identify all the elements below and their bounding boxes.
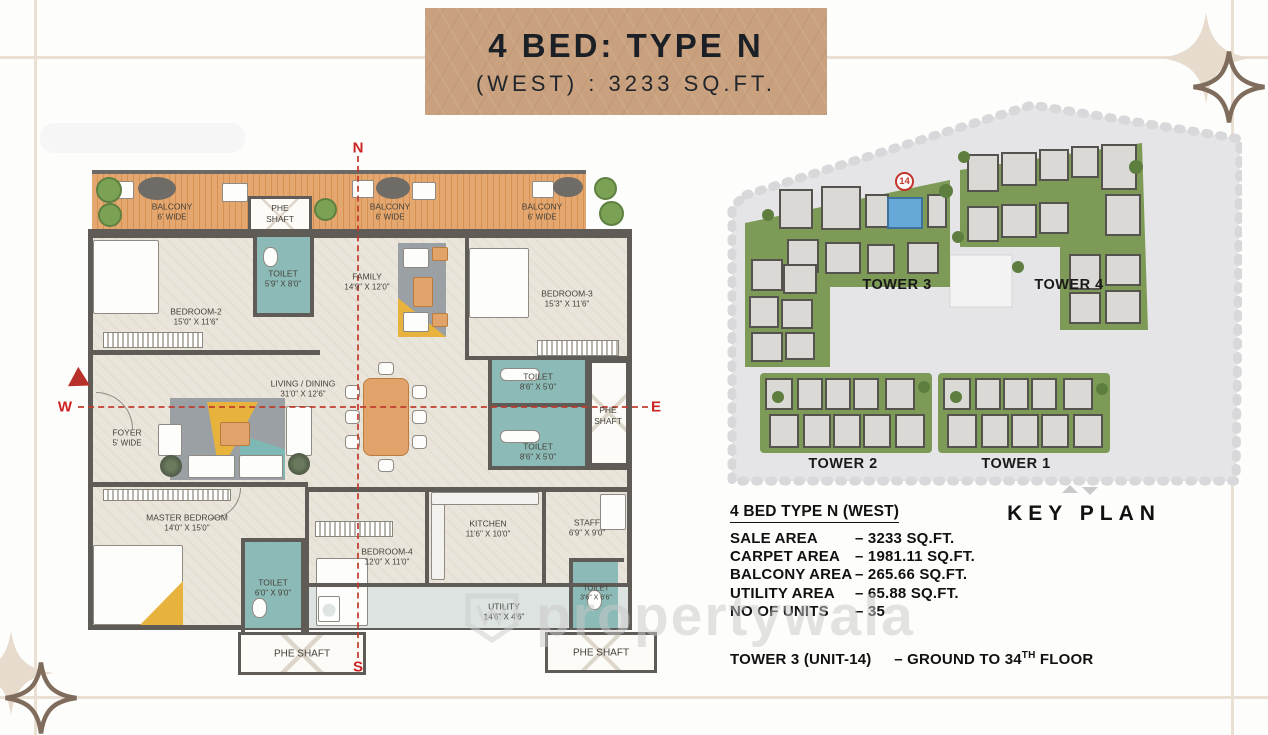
- frame-line-bottom: [0, 696, 1268, 699]
- label-phe-shaft-right: PHESHAFT: [594, 405, 622, 427]
- balcony-chair: [222, 183, 248, 202]
- wall: [88, 229, 632, 234]
- balcony-chair: [412, 182, 436, 200]
- tower-4-label: TOWER 4: [1034, 277, 1103, 293]
- side-table: [432, 247, 448, 261]
- family-chair: [403, 248, 429, 268]
- label-balcony-1: BALCONY6' WIDE: [152, 201, 193, 222]
- wall: [569, 558, 624, 562]
- page-subtitle: (WEST) : 3233 SQ.FT.: [476, 71, 776, 97]
- wall: [585, 360, 589, 470]
- compass-south: S: [353, 659, 363, 676]
- detail-label: BALCONY AREA: [730, 566, 855, 584]
- dining-chair: [412, 410, 427, 424]
- detail-row: UTILITY AREA – 65.88 SQ.FT.: [730, 585, 1150, 603]
- label-bedroom-4: BEDROOM-412'0" X 11'0": [361, 546, 412, 567]
- detail-label: UTILITY AREA: [730, 585, 855, 603]
- compass-west: W: [58, 399, 72, 416]
- frame-line-left: [34, 0, 37, 735]
- label-master-bedroom: MASTER BEDROOM14'0" X 15'0": [146, 512, 228, 533]
- wall: [253, 313, 314, 317]
- side-table: [432, 313, 448, 327]
- label-toilet-5: TOILET3'6" X 6'6": [580, 584, 612, 603]
- label-bedroom-2: BEDROOM-215'0" X 11'6": [170, 306, 221, 327]
- dining-chair: [412, 435, 427, 449]
- label-balcony-2: BALCONY6' WIDE: [370, 201, 411, 222]
- faded-watermark-blob: [40, 123, 245, 153]
- dining-chair: [412, 385, 427, 399]
- dining-chair: [378, 459, 394, 472]
- balcony-chair: [532, 181, 554, 198]
- tree-icon: [98, 203, 122, 227]
- label-balcony-3: BALCONY6' WIDE: [522, 201, 563, 222]
- compass-east: E: [651, 399, 661, 416]
- label-foyer: FOYER5' WIDE: [112, 427, 141, 448]
- sofa: [188, 455, 235, 478]
- tree-icon: [96, 177, 122, 203]
- plant-icon: [288, 453, 310, 475]
- label-phe-shaft-bottom-right: PHE SHAFT: [573, 647, 629, 660]
- label-bedroom-3: BEDROOM-315'3" X 11'6": [541, 288, 592, 309]
- kitchen-counter: [431, 492, 539, 505]
- sofa: [239, 455, 283, 478]
- detail-value: – 3233 SQ.FT.: [855, 530, 954, 548]
- wall: [425, 487, 429, 587]
- wall: [465, 233, 469, 360]
- coffee-table: [220, 422, 250, 446]
- wall: [488, 466, 632, 470]
- family-table: [413, 277, 433, 307]
- detail-label: CARPET AREA: [730, 548, 855, 566]
- unit-details: 4 BED TYPE N (WEST) SALE AREA – 3233 SQ.…: [730, 503, 1150, 621]
- balcony-rock: [376, 177, 410, 199]
- detail-value: – 265.66 SQ.FT.: [855, 566, 967, 584]
- balcony-chair: [352, 180, 374, 198]
- label-toilet-3: TOILET8'6" X 5'0": [520, 441, 556, 462]
- tower-1-label: TOWER 1: [981, 456, 1050, 472]
- page-title: 4 BED: TYPE N: [488, 27, 764, 65]
- detail-value: – 1981.11 SQ.FT.: [855, 548, 975, 566]
- wall: [488, 360, 492, 470]
- wall: [569, 558, 573, 630]
- tree-icon: [594, 177, 617, 200]
- label-staff: STAFF6'9" X 9'0": [569, 517, 605, 538]
- label-kitchen: KITCHEN11'6" X 10'0": [466, 518, 511, 539]
- wall: [305, 487, 309, 632]
- tower-unit-note: TOWER 3 (UNIT-14) – GROUND TO 34TH FLOOR: [730, 650, 1093, 668]
- brochure-page: 4 BED: TYPE N (WEST) : 3233 SQ.FT.: [0, 0, 1268, 735]
- details-heading: 4 BED TYPE N (WEST): [730, 503, 899, 523]
- plant-icon: [160, 455, 182, 477]
- wall: [241, 538, 305, 542]
- unit-14-marker: 14: [895, 172, 914, 191]
- tree-icon: [314, 198, 337, 221]
- wall: [241, 538, 245, 632]
- title-banner: 4 BED: TYPE N (WEST) : 3233 SQ.FT.: [425, 8, 827, 115]
- wall: [305, 487, 632, 492]
- wall: [542, 487, 546, 587]
- axis-line-we: [78, 406, 648, 408]
- label-toilet-1: TOILET5'9" X 8'0": [265, 268, 301, 289]
- detail-value: – 35: [855, 603, 885, 621]
- wc-icon: [263, 247, 278, 267]
- wardrobe: [537, 340, 619, 356]
- wall: [310, 237, 314, 317]
- tower-3-label: TOWER 3: [862, 277, 931, 293]
- detail-row: SALE AREA – 3233 SQ.FT.: [730, 530, 1150, 548]
- label-living-dining: LIVING / DINING31'0" X 12'6": [271, 378, 336, 399]
- family-chair: [403, 312, 429, 332]
- wardrobe: [315, 521, 393, 537]
- label-phe-shaft-bottom-left: PHE SHAFT: [274, 648, 330, 661]
- label-toilet-4: TOILET6'0" X 9'0": [255, 577, 291, 598]
- compass-north: N: [353, 140, 364, 157]
- wardrobe: [103, 332, 203, 348]
- bed-bedroom3: [469, 248, 529, 318]
- bed-bedroom2: [93, 240, 159, 314]
- sparkle-star-outline-icon: [4, 661, 78, 735]
- label-toilet-2: TOILET8'6" X 5'0": [520, 371, 556, 392]
- balcony-rock: [138, 177, 176, 200]
- detail-label: SALE AREA: [730, 530, 855, 548]
- label-family: FAMILY14'9" X 12'0": [344, 271, 389, 292]
- label-phe-shaft-top: PHESHAFT: [266, 203, 294, 225]
- detail-row: CARPET AREA – 1981.11 SQ.FT.: [730, 548, 1150, 566]
- wall: [253, 237, 257, 317]
- wall: [88, 482, 308, 487]
- detail-row: BALCONY AREA – 265.66 SQ.FT.: [730, 566, 1150, 584]
- sofa: [286, 406, 312, 456]
- detail-label: NO OF UNITS: [730, 603, 855, 621]
- dining-table: [363, 378, 409, 456]
- tower-2-label: TOWER 2: [808, 456, 877, 472]
- kitchen-counter: [431, 492, 445, 580]
- washing-machine: [318, 596, 340, 622]
- detail-row: NO OF UNITS – 35: [730, 603, 1150, 621]
- detail-value: – 65.88 SQ.FT.: [855, 585, 959, 603]
- dining-chair: [378, 362, 394, 375]
- wall: [88, 350, 320, 355]
- tree-icon: [599, 201, 624, 226]
- key-plan-map: [718, 95, 1242, 495]
- wc-icon: [252, 598, 267, 618]
- balcony-rock: [553, 177, 583, 197]
- label-utility: UTILITY14'6" X 4'6": [484, 601, 525, 622]
- armchair: [158, 424, 182, 456]
